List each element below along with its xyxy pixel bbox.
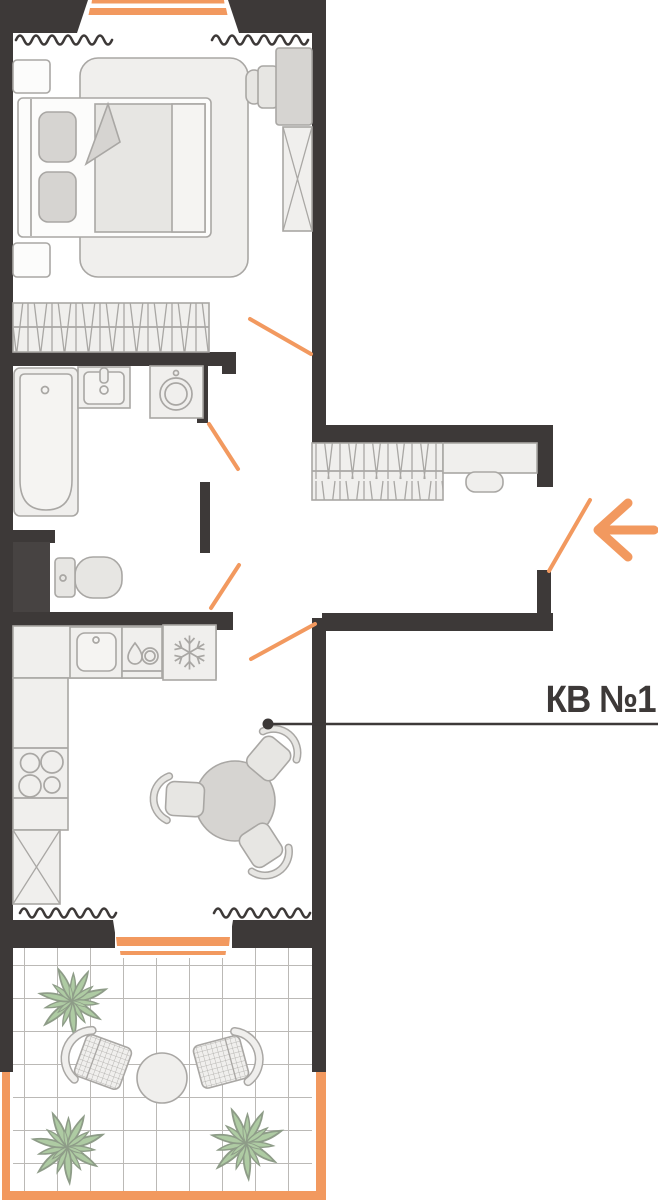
dishwasher-icon	[122, 627, 162, 678]
entrance-arrow-icon	[598, 503, 654, 557]
kitchen-living	[13, 625, 306, 904]
bench-icon	[443, 443, 537, 473]
bathroom-door-swing-icon	[209, 424, 238, 469]
floor-plan: КВ №1	[0, 0, 658, 1201]
bathtub-icon	[14, 368, 78, 516]
kitchen-sink-icon	[70, 627, 122, 678]
nightstand-icon	[13, 243, 50, 277]
toilet-icon	[55, 557, 122, 598]
balcony-door-bottom-icon	[113, 920, 233, 958]
pouf-icon	[466, 472, 503, 492]
hallway	[312, 443, 537, 500]
closet-hanging-rod-icon	[13, 303, 209, 352]
dining-chair-icon	[152, 775, 205, 822]
floor-plan-drawing	[0, 0, 658, 1201]
desk-chair-icon	[246, 66, 278, 108]
pillow-icon	[39, 172, 76, 222]
wardrobe-x-icon	[283, 127, 312, 231]
desk-icon	[276, 48, 312, 125]
entrance-door-swing-icon	[549, 500, 590, 571]
wc	[55, 557, 122, 598]
fridge-snowflake-icon	[163, 625, 216, 680]
bathroom	[14, 366, 203, 516]
coffee-table-icon	[137, 1053, 187, 1103]
railing-bottom	[2, 1191, 326, 1200]
window-icon	[16, 36, 112, 45]
balcony	[2, 948, 326, 1200]
base-cabinet-x-icon	[13, 830, 60, 904]
window-icon	[20, 909, 116, 918]
double-bed-icon	[18, 98, 211, 237]
duct-shaft	[13, 542, 50, 612]
bedroom	[13, 48, 312, 352]
coat-rack-icon	[312, 443, 443, 500]
kitchen-door-swing-icon	[251, 624, 315, 659]
window-icon	[214, 909, 310, 918]
window-icon	[212, 36, 308, 45]
washbasin-icon	[78, 367, 130, 408]
bedroom-door-swing-icon	[250, 319, 311, 354]
apartment-label: КВ №1	[546, 681, 656, 719]
pillow-icon	[39, 112, 76, 162]
railing-left	[2, 1072, 10, 1200]
wc-door-swing-icon	[211, 565, 239, 608]
railing-right	[316, 1072, 326, 1200]
nightstand-icon	[13, 60, 50, 93]
balcony-door-top-icon	[77, 0, 239, 33]
washing-machine-icon	[150, 366, 203, 418]
